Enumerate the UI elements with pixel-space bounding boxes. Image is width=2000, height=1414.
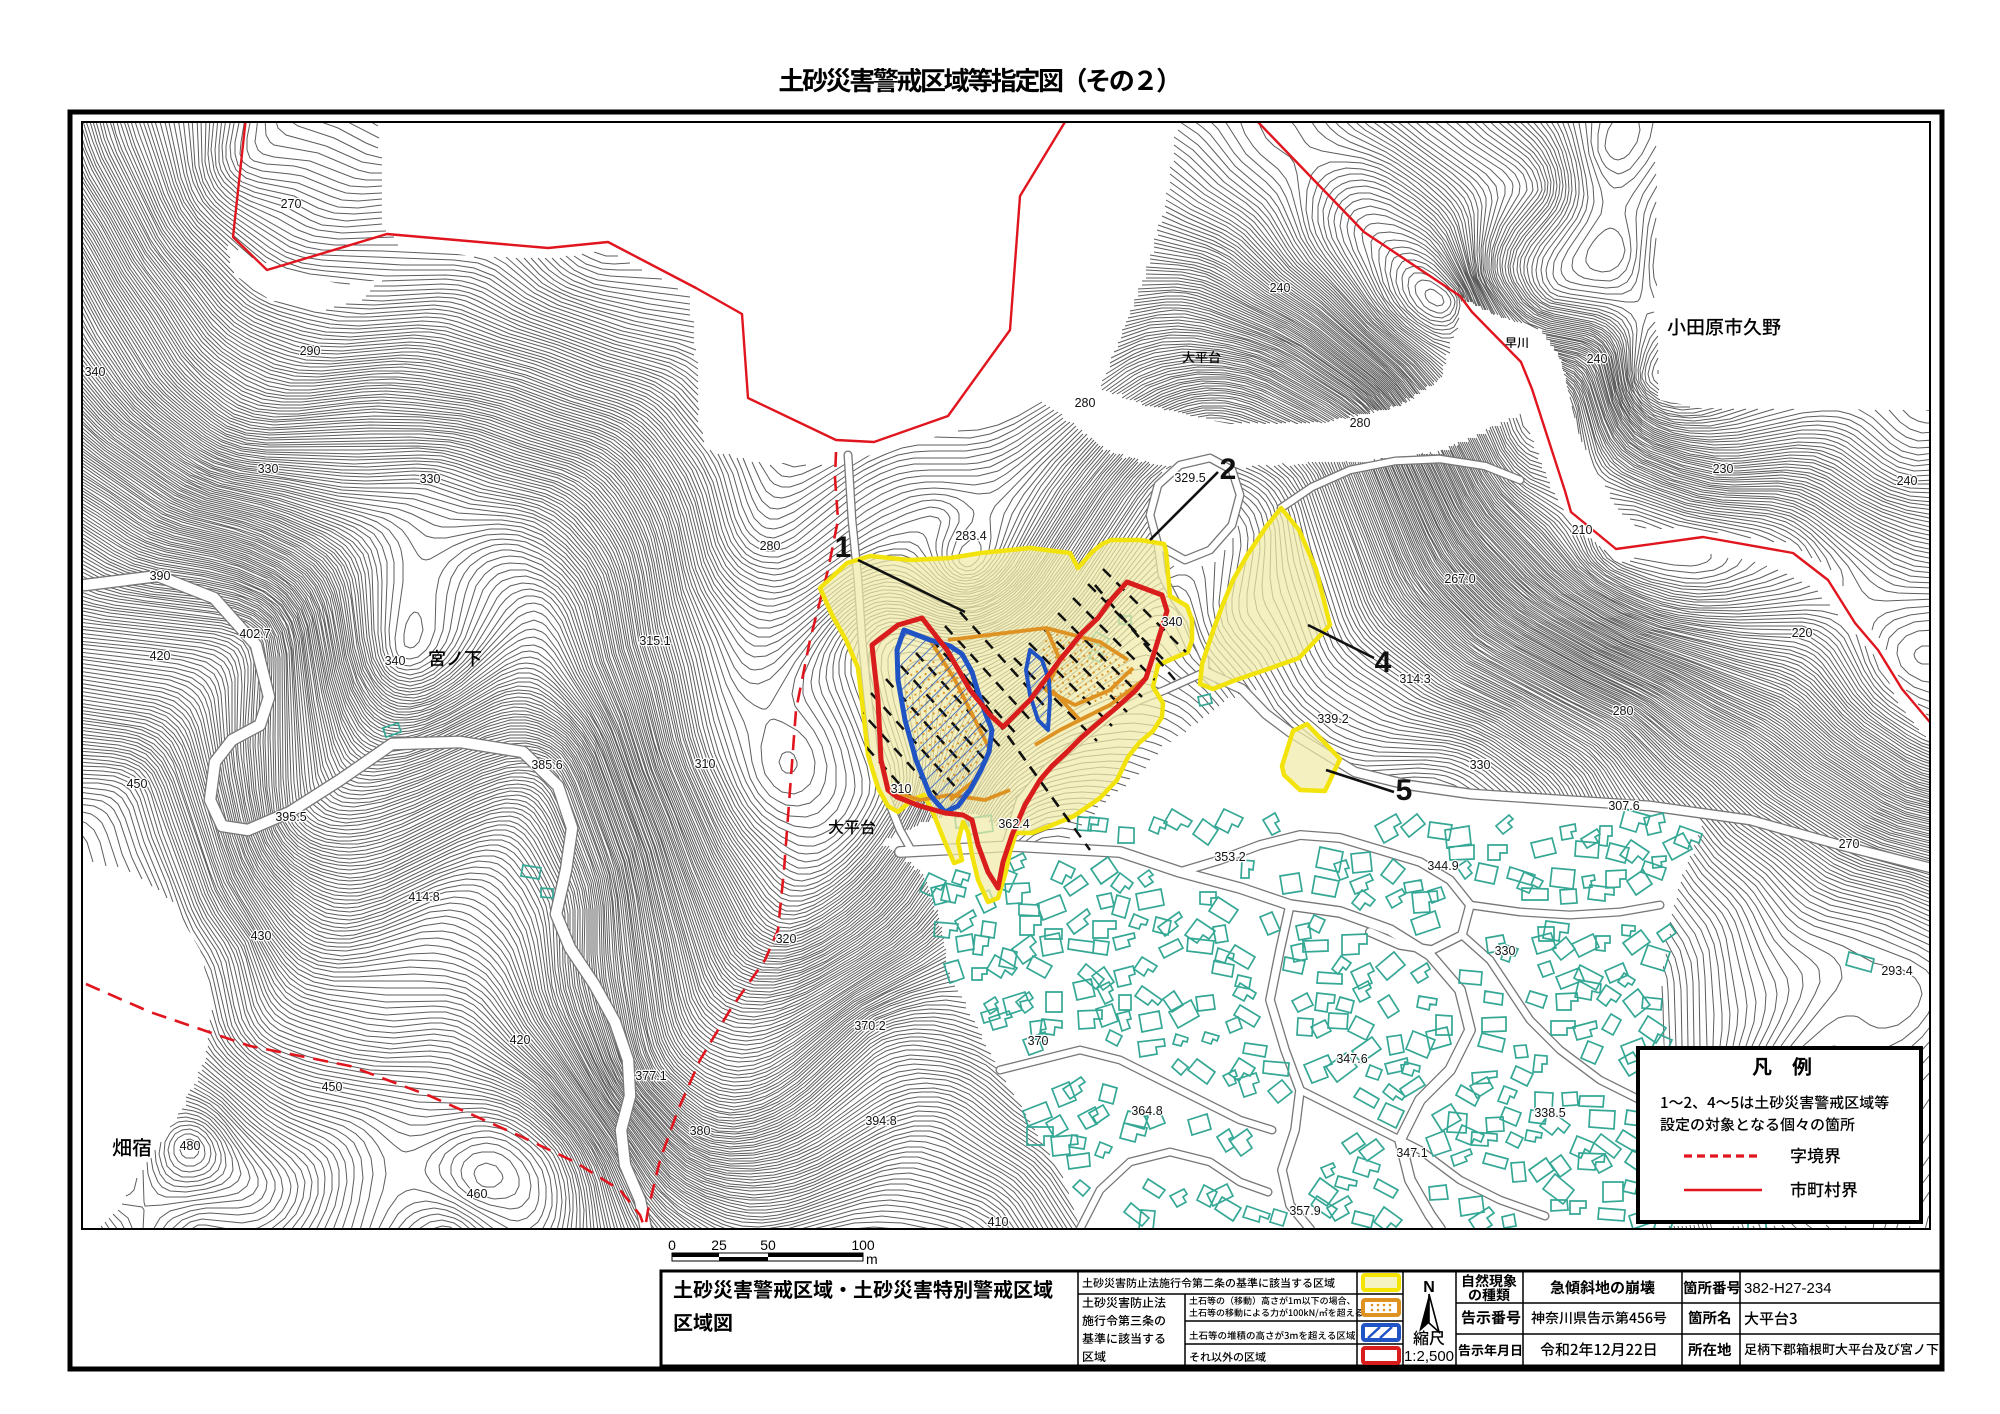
svg-text:370: 370 [1028,1034,1049,1048]
svg-text:357.9: 357.9 [1289,1204,1320,1218]
svg-text:270: 270 [1839,837,1860,851]
svg-text:377.1: 377.1 [635,1069,666,1083]
svg-text:210: 210 [1572,523,1593,537]
svg-text:330: 330 [420,472,441,486]
svg-text:1: 1 [835,531,852,564]
svg-text:330: 330 [1495,944,1516,958]
svg-text:402.7: 402.7 [239,627,270,641]
svg-text:293.4: 293.4 [1881,964,1912,978]
svg-text:380: 380 [690,1124,711,1138]
svg-text:280: 280 [1613,704,1634,718]
svg-text:364.8: 364.8 [1131,1104,1162,1118]
svg-text:280: 280 [1075,396,1096,410]
svg-text:5: 5 [1396,774,1413,807]
svg-text:347.6: 347.6 [1336,1052,1367,1066]
svg-text:430: 430 [251,929,272,943]
svg-text:340: 340 [85,365,106,379]
svg-text:329.5: 329.5 [1174,471,1205,485]
svg-text:290: 290 [300,344,321,358]
svg-text:370.2: 370.2 [854,1019,885,1033]
svg-text:394.8: 394.8 [865,1114,896,1128]
svg-text:280: 280 [760,539,781,553]
svg-text:330: 330 [258,462,279,476]
svg-text:347.1: 347.1 [1396,1146,1427,1160]
svg-text:310: 310 [891,782,912,796]
svg-text:450: 450 [322,1080,343,1094]
svg-text:307.6: 307.6 [1608,799,1639,813]
svg-text:353.2: 353.2 [1214,850,1245,864]
svg-text:25: 25 [711,1237,727,1253]
svg-text:480: 480 [180,1139,201,1153]
svg-text:240: 240 [1897,474,1918,488]
svg-text:339.2: 339.2 [1317,712,1348,726]
svg-text:385.6: 385.6 [531,758,562,772]
svg-text:450: 450 [127,777,148,791]
svg-text:344.9: 344.9 [1427,859,1458,873]
svg-text:460: 460 [467,1187,488,1201]
svg-text:340: 340 [385,654,406,668]
svg-text:382-H27-234: 382-H27-234 [1744,1280,1832,1297]
svg-text:414.8: 414.8 [408,890,439,904]
svg-text:340: 340 [1162,615,1183,629]
svg-text:N: N [1423,1279,1435,1296]
svg-text:390: 390 [150,569,171,583]
svg-text:280: 280 [1350,416,1371,430]
svg-text:240: 240 [1270,281,1291,295]
svg-text:220: 220 [1792,626,1813,640]
svg-text:310: 310 [695,757,716,771]
svg-text:2: 2 [1220,453,1237,486]
svg-text:283.4: 283.4 [955,529,986,543]
svg-text:m: m [866,1251,878,1267]
svg-text:240: 240 [1587,352,1608,366]
svg-text:338.5: 338.5 [1534,1106,1565,1120]
svg-text:0: 0 [668,1237,676,1253]
svg-text:315.1: 315.1 [639,634,670,648]
svg-text:330: 330 [1470,758,1491,772]
svg-text:314.3: 314.3 [1399,672,1430,686]
svg-text:4: 4 [1375,646,1392,679]
svg-text:1:2,500: 1:2,500 [1404,1348,1454,1365]
svg-text:420: 420 [510,1033,531,1047]
svg-text:362.4: 362.4 [998,817,1029,831]
svg-text:320: 320 [776,932,797,946]
svg-text:267.0: 267.0 [1444,572,1475,586]
svg-text:420: 420 [150,649,171,663]
svg-text:410: 410 [988,1215,1009,1229]
svg-text:395.5: 395.5 [275,810,306,824]
svg-text:270: 270 [281,197,302,211]
svg-text:230: 230 [1713,462,1734,476]
svg-text:50: 50 [760,1237,776,1253]
